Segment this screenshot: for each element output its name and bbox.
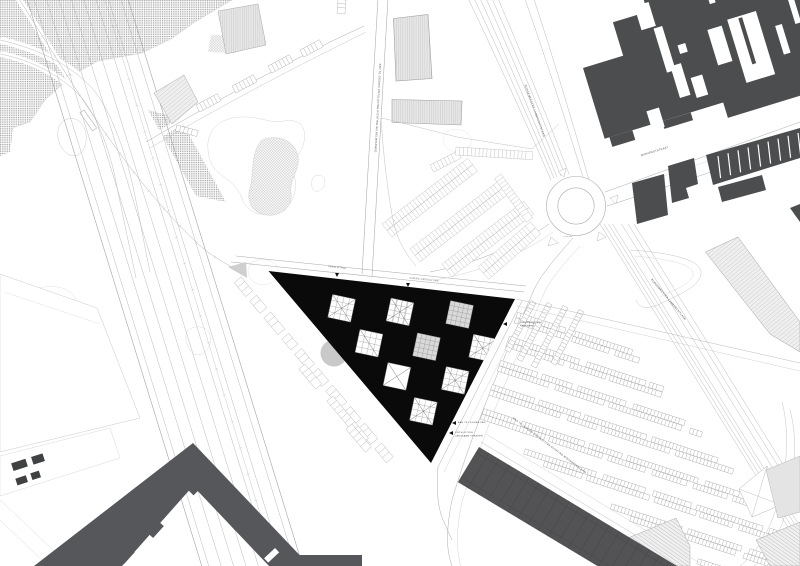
svg-text:LANGZAAM VERKEER: LANGZAAM VERKEER [455, 435, 483, 438]
svg-text:NIEUWE ENTREE: NIEUWE ENTREE [520, 322, 542, 324]
svg-text:rotonde: rotonde [564, 235, 573, 238]
svg-text:PARKEREN: PARKEREN [520, 325, 534, 328]
svg-text:ONTSLUITING: ONTSLUITING [455, 432, 473, 434]
svg-text:AAN TE LEGGEN PAD: AAN TE LEGGEN PAD [458, 421, 486, 424]
